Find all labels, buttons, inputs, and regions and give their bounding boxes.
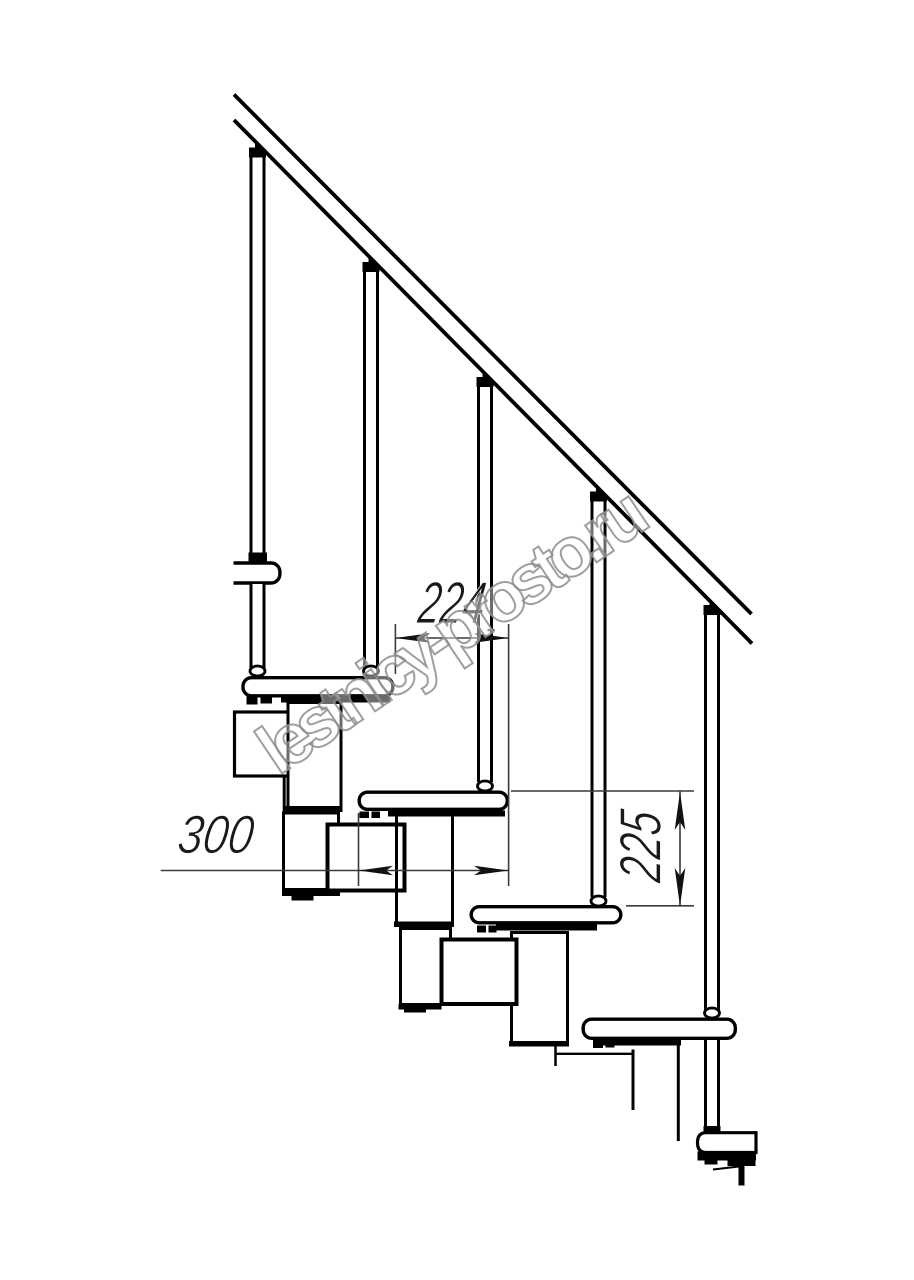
svg-text:300: 300 [174,805,257,865]
svg-text:225: 225 [609,806,674,886]
